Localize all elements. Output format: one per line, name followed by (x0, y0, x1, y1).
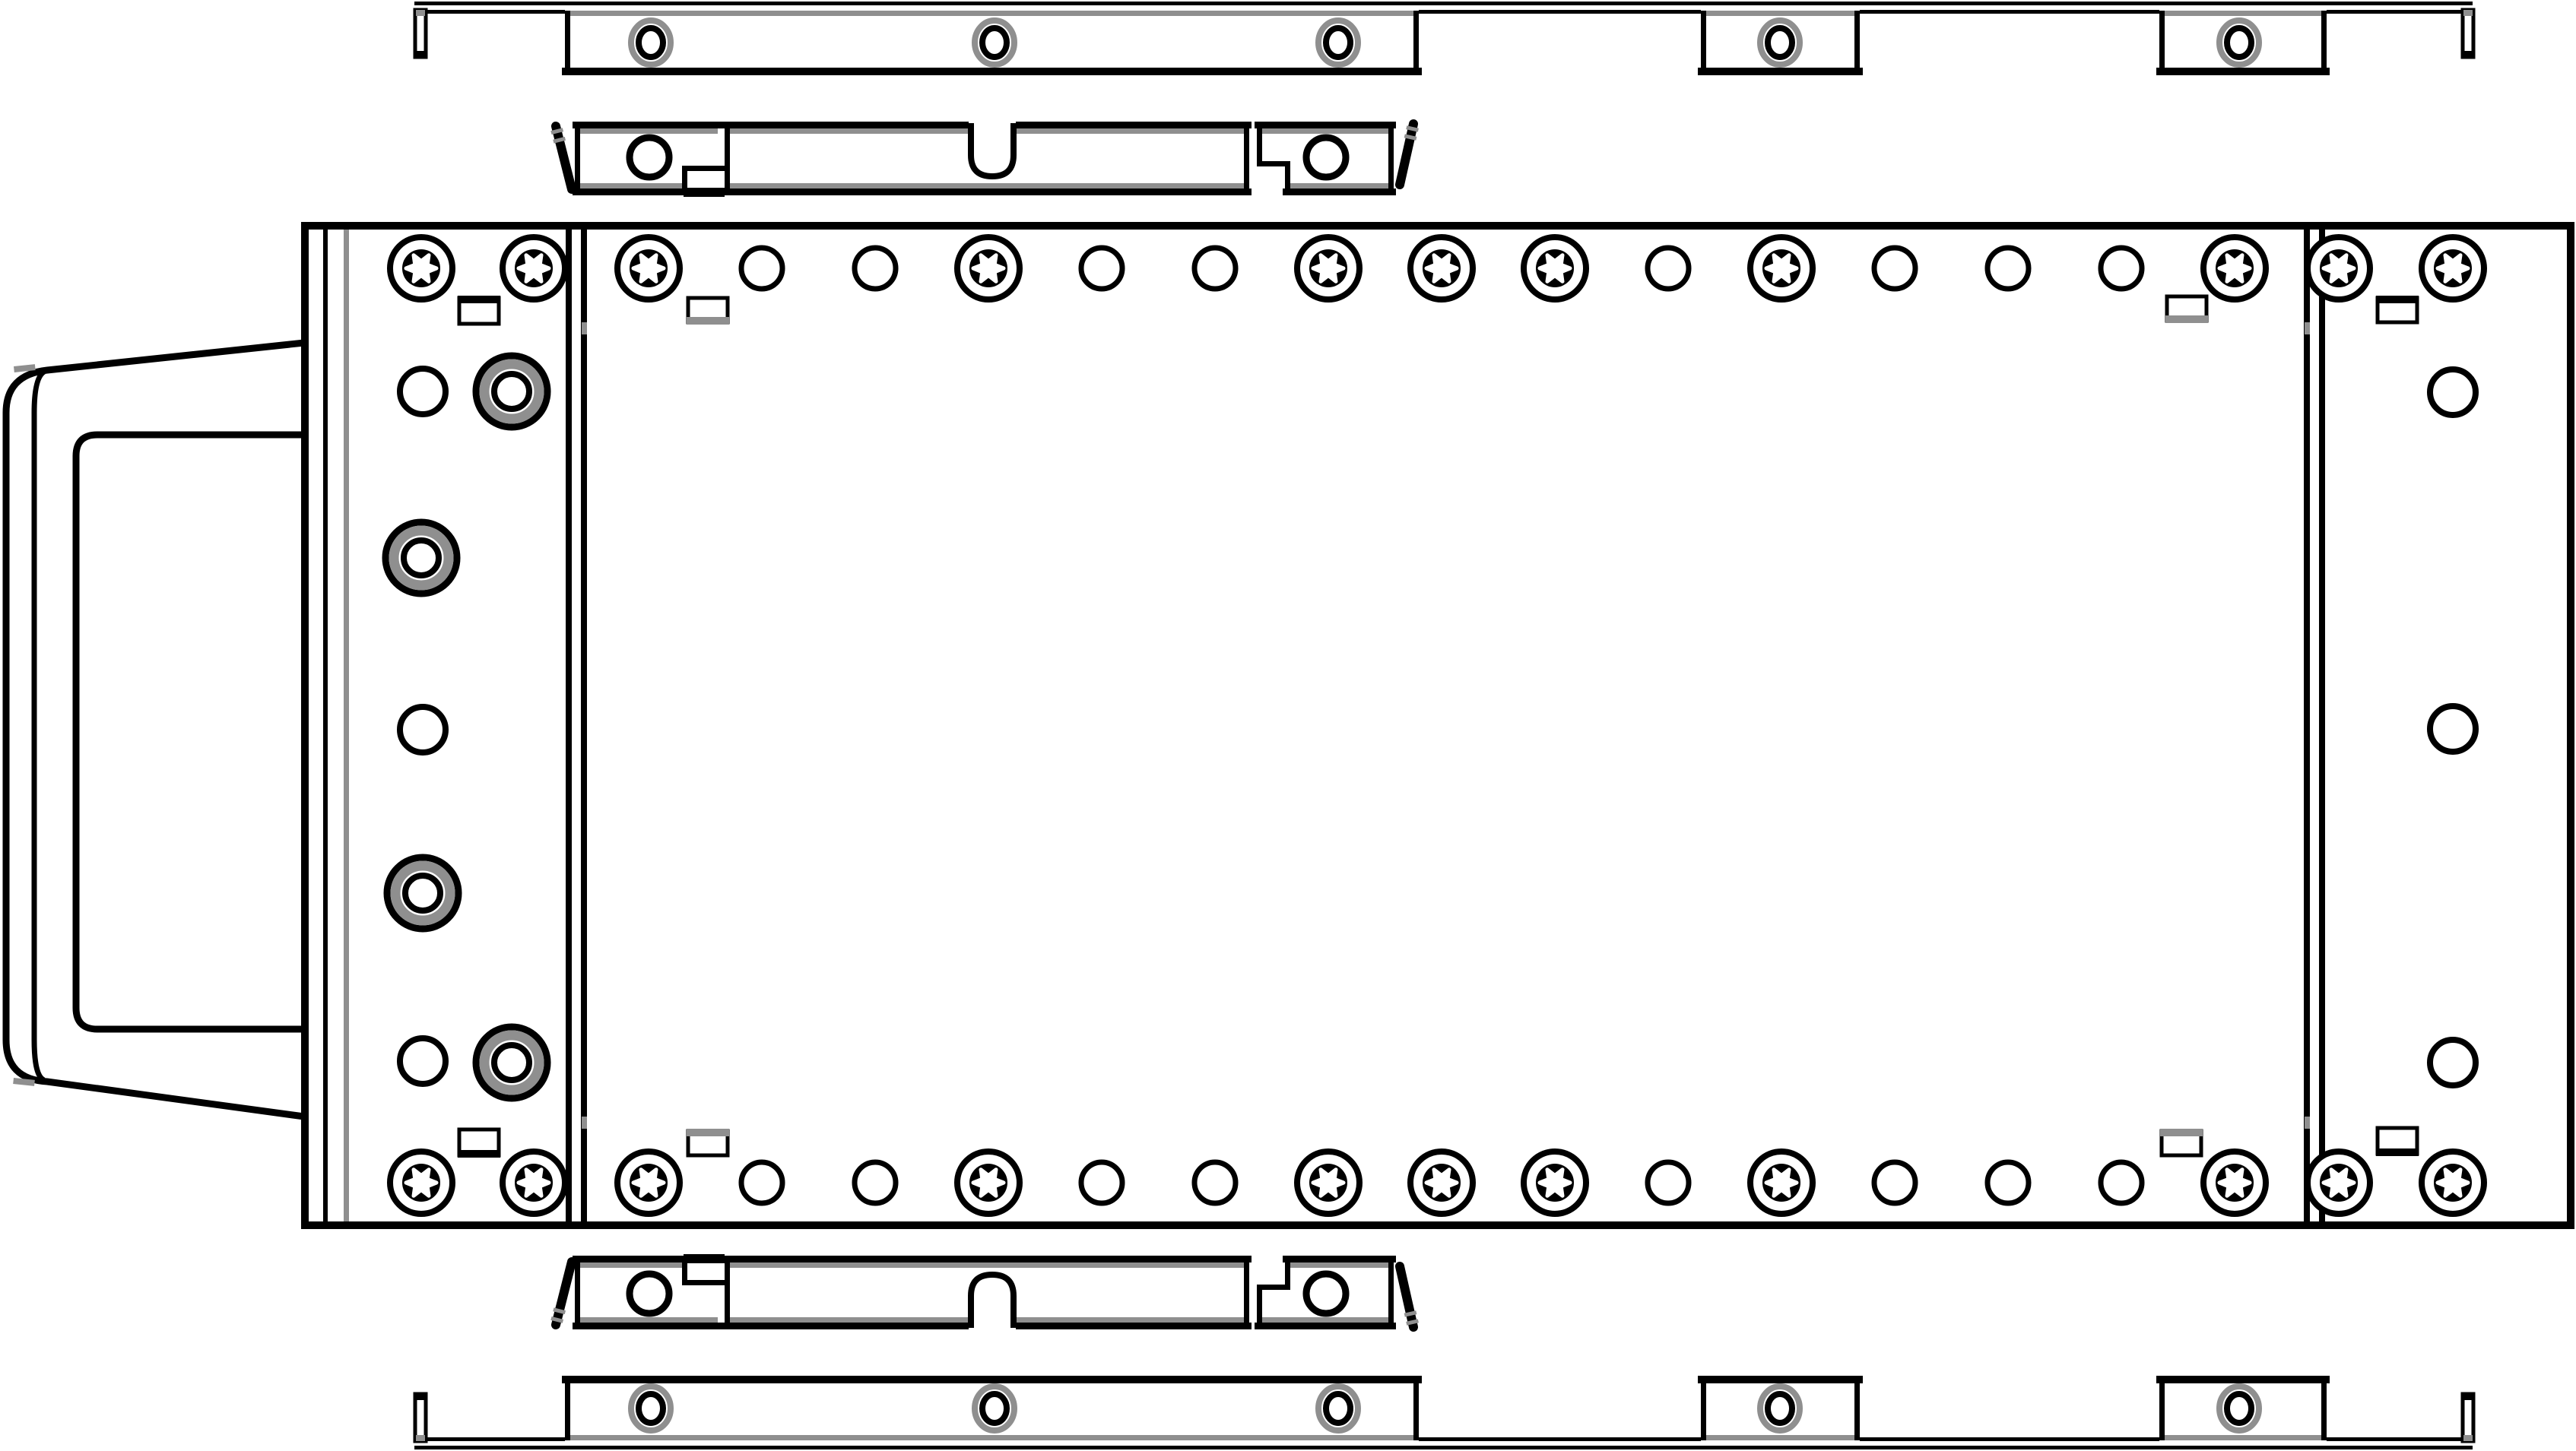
rivet-hole (630, 1274, 669, 1313)
rivet-hole (1874, 1162, 1915, 1203)
notch-tab (687, 1129, 729, 1155)
clip-bar-segment (573, 122, 725, 197)
chassis-base-plate (301, 222, 2574, 1229)
rivet-hole (2101, 1162, 2142, 1203)
rail-eyelet (631, 21, 671, 65)
notch-tab (2160, 1129, 2203, 1155)
rail-bracket (1698, 7, 1863, 75)
bushing-grommet (385, 522, 457, 594)
torx-screw (2308, 237, 2370, 299)
rivet-hole (2430, 1040, 2476, 1085)
torx-screw (1297, 1152, 1359, 1214)
rivet-hole (630, 138, 669, 177)
torx-screw (503, 1152, 565, 1214)
torx-screw (1297, 237, 1359, 299)
clip-bar-segment (1255, 1256, 1396, 1329)
rail-end-hook (2463, 10, 2473, 57)
top-clip-bar (551, 118, 1418, 197)
bottom-clip-bar (551, 1254, 1418, 1333)
top-mounting-rail (414, 2, 2473, 75)
torx-screw (1750, 237, 1813, 299)
rivet-hole (400, 1038, 446, 1084)
rivet-hole (2101, 248, 2142, 289)
rail-bracket (562, 7, 1422, 75)
rail-bracket (1698, 1376, 1863, 1444)
torx-screw (617, 237, 680, 299)
clip-bar-segment (1255, 122, 1396, 195)
rail-eyelet (1318, 21, 1358, 65)
notch-tab (2376, 1128, 2419, 1156)
torx-screw (1524, 237, 1586, 299)
rivet-hole (2430, 706, 2476, 752)
rivet-hole (1988, 1162, 2029, 1203)
rail-bracket (2156, 1376, 2330, 1444)
rail-eyelet (975, 1386, 1014, 1430)
notch-tab (687, 298, 729, 325)
spring-clip (1400, 124, 1418, 185)
torx-screw (390, 237, 452, 299)
rivet-hole (400, 369, 446, 414)
bushing-grommet (387, 857, 458, 929)
rivet-hole (855, 1162, 896, 1203)
torx-screw (2422, 237, 2484, 299)
rail-end-hook (2463, 1394, 2473, 1441)
rivet-hole (1194, 248, 1236, 289)
rail-eyelet (631, 1386, 671, 1430)
torx-screw (957, 237, 1020, 299)
exploded-view-drawing (0, 0, 2576, 1451)
notch-tab (2165, 296, 2208, 323)
bushing-grommet (476, 356, 547, 427)
rivet-hole (1648, 248, 1689, 289)
clip-bar-segment (722, 118, 1252, 195)
rivet-hole (1306, 138, 1346, 177)
torx-screw (617, 1152, 680, 1214)
bushing-grommet (476, 1027, 547, 1098)
clip-bar-segment (573, 1254, 725, 1329)
rail-eyelet (1760, 21, 1800, 65)
torx-screw (503, 237, 565, 299)
spring-clip (551, 126, 572, 189)
rivet-hole (2430, 369, 2476, 415)
rail-bracket (2156, 7, 2330, 75)
notch-tab (458, 1129, 500, 1158)
rivet-hole (741, 248, 782, 289)
rivet-hole (741, 1162, 782, 1203)
rivet-hole (1081, 1162, 1122, 1203)
rivet-hole (1874, 248, 1915, 289)
assembly-diagram (0, 0, 2576, 1451)
torx-screw (2203, 1152, 2266, 1214)
handle-bracket (6, 343, 304, 1117)
spring-clip (1400, 1266, 1418, 1327)
rivet-hole (1648, 1162, 1689, 1203)
torx-screw (2308, 1152, 2370, 1214)
torx-screw (1410, 237, 1473, 299)
rivet-hole (1194, 1162, 1236, 1203)
notch-tab (2376, 296, 2419, 322)
rail-end-hook (415, 10, 426, 57)
rail-eyelet (975, 21, 1014, 65)
torx-screw (1750, 1152, 1813, 1214)
clip-bar-segment (722, 1256, 1252, 1333)
rivet-hole (400, 707, 446, 752)
spring-clip (551, 1262, 572, 1325)
rail-bracket (562, 1376, 1422, 1444)
rail-eyelet (2219, 21, 2259, 65)
torx-screw (1524, 1152, 1586, 1214)
bottom-mounting-rail (414, 1376, 2473, 1449)
rail-eyelet (2219, 1386, 2259, 1430)
torx-screw (1410, 1152, 1473, 1214)
rivet-hole (1306, 1274, 1346, 1313)
torx-screw (2203, 237, 2266, 299)
torx-screw (390, 1152, 452, 1214)
rivet-hole (1081, 248, 1122, 289)
rivet-hole (855, 248, 896, 289)
notch-tab (458, 296, 500, 324)
rail-end-hook (415, 1394, 426, 1441)
rail-eyelet (1760, 1386, 1800, 1430)
rail-eyelet (1318, 1386, 1358, 1430)
rivet-hole (1988, 248, 2029, 289)
torx-screw (2422, 1152, 2484, 1214)
torx-screw (957, 1152, 1020, 1214)
